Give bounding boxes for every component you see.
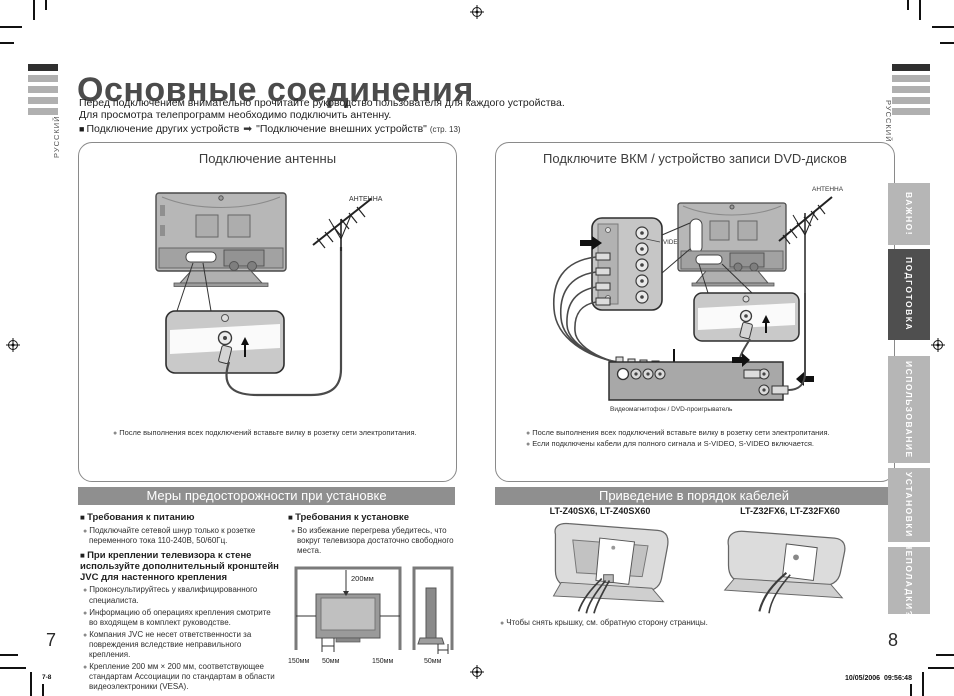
antenna-jack-closeup <box>166 311 284 373</box>
mount-bullet: Проконсультируйтесь у квалифицированного… <box>83 585 280 605</box>
mount-bullet: Информацию об операциях крепления смотри… <box>83 608 280 628</box>
precautions-col-power: Требования к питанию Подключайте сетевой… <box>80 508 280 693</box>
antenna-label: АНТЕННА <box>349 196 383 203</box>
clearance-right-label: 150мм <box>372 658 393 665</box>
clearance-diagram: 200мм 150мм 50мм 150мм 50мм <box>288 562 458 670</box>
vcr-note-1: После выполнения всех подключений вставь… <box>526 428 876 439</box>
intro-text: Перед подключением внимательно прочитайт… <box>79 98 565 122</box>
model-label-left: LT-Z40SX6, LT-Z40SX60 <box>500 506 700 516</box>
other-devices-label: Подключение других устройств <box>86 123 239 135</box>
antenna-icon <box>313 199 371 251</box>
crop-mark <box>940 42 954 44</box>
footer-folio: 7-8 <box>42 674 51 681</box>
intro-line-2: Для просмотра телепрограмм необходимо по… <box>79 110 565 122</box>
crop-mark <box>936 654 954 656</box>
other-devices-ref: "Подключение внешних устройств" <box>256 123 427 135</box>
sidebar-tab-settings: УСТАНОВКИ <box>888 468 930 542</box>
clearance-side-view-label: 50мм <box>424 658 442 665</box>
precautions-header: Меры предосторожности при установке <box>78 487 455 505</box>
decor-bar <box>892 108 930 115</box>
crop-mark <box>919 0 921 20</box>
wall-mount-heading: При креплении телевизора к стене использ… <box>80 551 280 583</box>
decor-bar <box>28 86 58 93</box>
antenna-panel-note: После выполнения всех подключений вставь… <box>113 428 433 439</box>
crop-mark <box>45 0 47 10</box>
install-requirements-heading: Требования к установке <box>288 513 460 524</box>
power-requirements-heading: Требования к питанию <box>80 513 280 524</box>
footer-time: 09:56:48 <box>884 675 912 682</box>
page-number-left: 7 <box>46 630 56 651</box>
registration-mark-icon <box>6 338 20 352</box>
mount-bullet: Компания JVC не несет ответственности за… <box>83 630 280 660</box>
antenna-icon <box>779 197 832 293</box>
decor-bar <box>892 86 930 93</box>
footer-timestamp: 10/05/2006 09:56:48 <box>845 675 912 682</box>
crop-mark <box>928 667 954 669</box>
manual-spread: РУССКИЙ РУССКИЙ Основные соединения Пере… <box>0 0 954 696</box>
crop-mark <box>932 26 954 28</box>
decor-bar <box>892 75 930 82</box>
page-number-right: 8 <box>888 630 898 651</box>
cable-tidy-note: Чтобы снять крышку, см. обратную сторону… <box>500 618 820 627</box>
other-devices-line: Подключение других устройств➡"Подключени… <box>79 123 461 135</box>
sidebar-tab-troubleshooting: НЕПОЛАДКИ? <box>888 547 930 614</box>
other-devices-page-ref: (стр. 13) <box>430 125 461 134</box>
registration-mark-icon <box>931 338 945 352</box>
model-label-right: LT-Z32FX6, LT-Z32FX60 <box>690 506 890 516</box>
cable-tidy-illustration-left <box>540 517 675 617</box>
tv-rear-illustration <box>156 193 286 287</box>
decor-bar <box>28 75 58 82</box>
registration-mark-icon <box>470 665 484 679</box>
cable-tidy-illustration-right <box>715 517 850 617</box>
antenna-label: АНТЕННА <box>812 186 844 193</box>
crop-mark <box>30 672 32 696</box>
right-arrow-icon: ➡ <box>243 123 252 135</box>
clearance-left-label: 150мм <box>288 658 309 665</box>
install-requirements-bullet: Во избежание перегрева убедитесь, что во… <box>291 526 460 556</box>
crop-mark <box>0 26 22 28</box>
decor-bar <box>892 97 930 104</box>
mount-bullet: Крепление 200 мм × 200 мм, соответствующ… <box>83 662 280 692</box>
sidebar-tab-preparation: ПОДГОТОВКА <box>888 249 930 340</box>
cable-tidy-header: Приведение в порядок кабелей <box>495 487 893 505</box>
power-requirements-bullet: Подключайте сетевой шнур только к розетк… <box>83 526 280 546</box>
crop-mark <box>922 672 924 696</box>
crop-mark <box>910 684 912 696</box>
crop-mark <box>907 0 909 10</box>
clearance-top-label: 200мм <box>351 574 374 583</box>
clearance-bottom-left-label: 50мм <box>322 658 340 665</box>
decor-bar <box>28 64 58 71</box>
crop-mark <box>0 654 18 656</box>
vcr-connection-panel: Подключите ВКМ / устройство записи DVD-д… <box>495 142 895 482</box>
language-label-left: РУССКИЙ <box>52 100 61 158</box>
sidebar-tab-use: ИСПОЛЬЗОВАНИЕ <box>888 356 930 463</box>
crop-mark <box>0 667 26 669</box>
precautions-col-install: Требования к установке Во избежание пере… <box>288 508 460 672</box>
crop-mark <box>42 684 44 696</box>
sidebar-tab-important: ВАЖНО! <box>888 183 930 245</box>
crop-mark <box>33 0 35 20</box>
decor-bar <box>892 64 930 71</box>
footer-date: 10/05/2006 <box>845 675 880 682</box>
antenna-connection-panel: Подключение антенны <box>78 142 457 482</box>
registration-mark-icon <box>470 5 484 19</box>
crop-mark <box>0 42 14 44</box>
av-panel-closeup <box>580 218 662 310</box>
vcr-note-2: Если подключены кабели для полного сигна… <box>526 439 876 450</box>
recorder-label: Видеомагнитофон / DVD-проигрыватель <box>610 406 733 413</box>
antenna-jack-closeup <box>694 293 799 341</box>
vcr-panel-notes: После выполнения всех подключений вставь… <box>526 428 876 449</box>
